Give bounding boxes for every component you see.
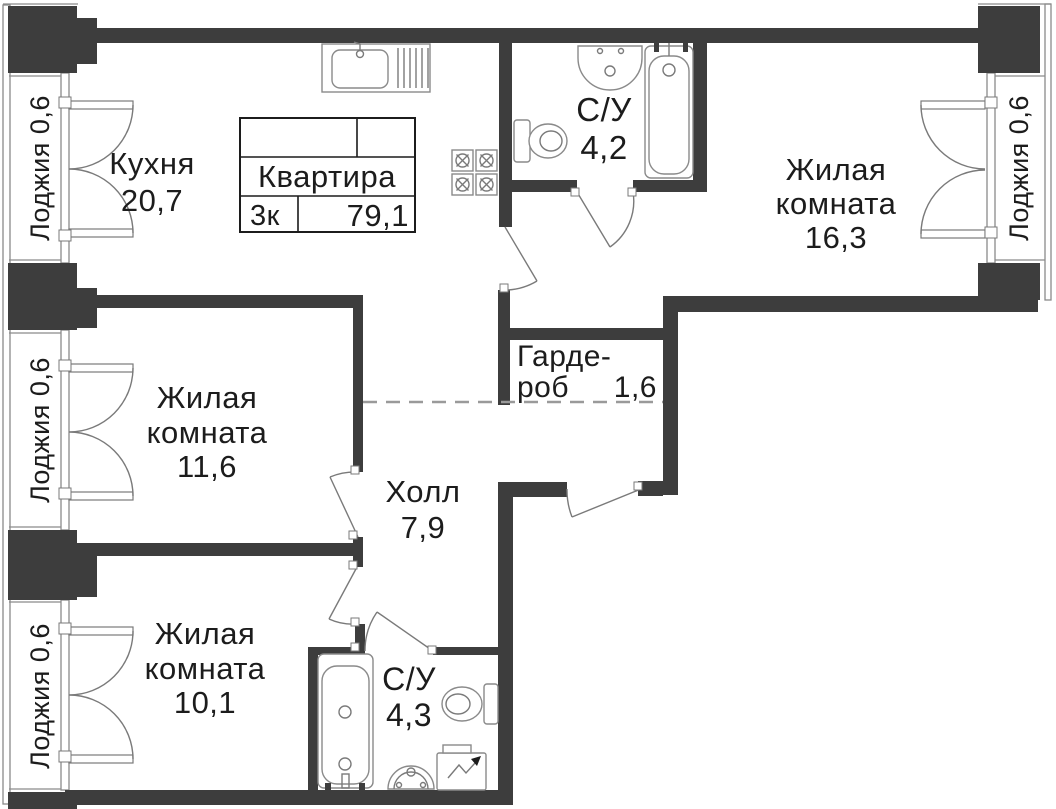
area-label: 4,2: [580, 129, 627, 166]
wall-top-exterior: [69, 28, 980, 43]
loggia-label: Лоджия 0,6: [1004, 95, 1034, 241]
room-label: Жилая: [155, 616, 256, 651]
area-label: 11,6: [177, 449, 237, 484]
room-labels: Кухня 20,7 С/У 4,2 Жилая комната 16,3 Га…: [25, 91, 1034, 769]
wall-wardrobe-left: [498, 290, 510, 405]
room-bathroom-top: С/У 4,2: [576, 91, 632, 166]
window-leaf: [921, 230, 985, 238]
room-hall: Холл 7,9: [385, 474, 460, 545]
room-label: Гарде-: [517, 340, 611, 373]
wall-living-large-bottom: [663, 296, 1038, 312]
rooms-count: 3к: [250, 200, 280, 232]
toilet-tank-icon: [514, 120, 530, 162]
stove-icon: [452, 150, 497, 195]
floor-plan: Квартира 3к 79,1 Кухня 20,7 С/У 4,2 Жила…: [0, 0, 1056, 809]
wall-bottom-exterior: [65, 790, 513, 805]
door-bathroom-bottom: [365, 612, 433, 651]
room-label: комната: [776, 186, 897, 221]
window-leaf: [69, 755, 133, 763]
door-arc: [921, 105, 985, 234]
room-label: Холл: [385, 474, 460, 509]
window-leaf: [921, 101, 985, 109]
bathtub-inner-icon: [322, 666, 369, 784]
tub-foot-icon: [359, 783, 365, 790]
room-label: Жилая: [157, 380, 258, 415]
room-living-large: Жилая комната 16,3: [776, 152, 897, 255]
right-loggia-outer-railing: [1045, 4, 1051, 300]
door-bedroom-mid: [330, 472, 358, 537]
wall-hall-right: [663, 296, 678, 495]
title-block: Квартира 3к 79,1: [240, 118, 415, 233]
room-kitchen: Кухня 20,7: [109, 146, 194, 218]
door-bathroom-top: [577, 192, 634, 247]
room-label: Кухня: [109, 146, 194, 181]
area-label: 20,7: [121, 183, 183, 218]
wall-bedroom-mid-right: [353, 295, 363, 472]
loggia-label: Лоджия 0,6: [25, 623, 55, 769]
area-label: 1,6: [614, 371, 657, 404]
window-leaf: [69, 364, 133, 372]
area-label: 10,1: [174, 685, 236, 720]
entrance-door: [567, 489, 641, 517]
room-label: комната: [145, 651, 266, 686]
room-bathroom-bottom: С/У 4,3: [382, 661, 436, 733]
wall-bath-top-bottom-left: [512, 180, 577, 192]
pylon-top-right: [978, 6, 1040, 73]
room-label: комната: [147, 415, 268, 450]
area-label: 16,3: [805, 220, 867, 255]
interior-doors: [329, 188, 642, 654]
sink-icon: [578, 46, 642, 90]
tap-icon: [654, 43, 659, 52]
door-kitchen: [505, 227, 537, 290]
area-label: 7,9: [401, 510, 446, 545]
room-living-mid: Жилая комната 11,6: [147, 380, 268, 484]
left-loggia-outer-railing: [3, 5, 10, 804]
door-bedroom-small: [329, 567, 357, 624]
washing-machine-icon: [443, 745, 471, 753]
toilet-tank-icon: [484, 684, 498, 724]
door-arc: [69, 368, 133, 496]
window-leaf: [69, 627, 133, 635]
pylon-right-2: [978, 263, 1040, 300]
wall-bedroom-mid-top: [69, 295, 363, 308]
room-wardrobe: Гарде- роб 1,6: [517, 340, 657, 404]
wall-right-lower: [498, 482, 513, 805]
wall-bath-top-right: [693, 43, 707, 192]
toilet-icon: [442, 687, 482, 721]
loggia-label: Лоджия 0,6: [25, 95, 55, 241]
kitchen-sink-icon: [332, 50, 388, 88]
apartment-title: Квартира: [258, 159, 396, 194]
wall-bath-top-left: [499, 43, 512, 227]
window-leaf: [69, 229, 133, 237]
room-label: роб: [517, 371, 569, 404]
room-label: Жилая: [786, 152, 887, 187]
window-leaf: [69, 492, 133, 500]
tap-icon: [683, 43, 688, 52]
wall-bedroom-divider: [69, 543, 353, 556]
room-living-small: Жилая комната 10,1: [145, 616, 266, 720]
area-label: 4,3: [386, 697, 432, 733]
door-hinges: [349, 188, 642, 654]
bathtub-inner-icon: [649, 56, 689, 174]
wall-wardrobe-top: [510, 328, 663, 340]
pylon-left-3-jut: [65, 550, 97, 597]
room-label: С/У: [382, 661, 436, 697]
door-arc: [69, 631, 133, 759]
room-label: С/У: [576, 91, 632, 128]
window-leaf: [69, 101, 133, 109]
loggia-label: Лоджия 0,6: [25, 357, 55, 503]
pylon-top-left-jut: [65, 18, 97, 64]
wall-bath-bottom-left: [308, 647, 318, 790]
total-area: 79,1: [347, 198, 409, 233]
tub-foot-icon: [325, 783, 331, 790]
wall-bath-bottom-top-right: [433, 647, 498, 655]
floor-plan-page: Квартира 3к 79,1 Кухня 20,7 С/У 4,2 Жила…: [0, 0, 1056, 809]
